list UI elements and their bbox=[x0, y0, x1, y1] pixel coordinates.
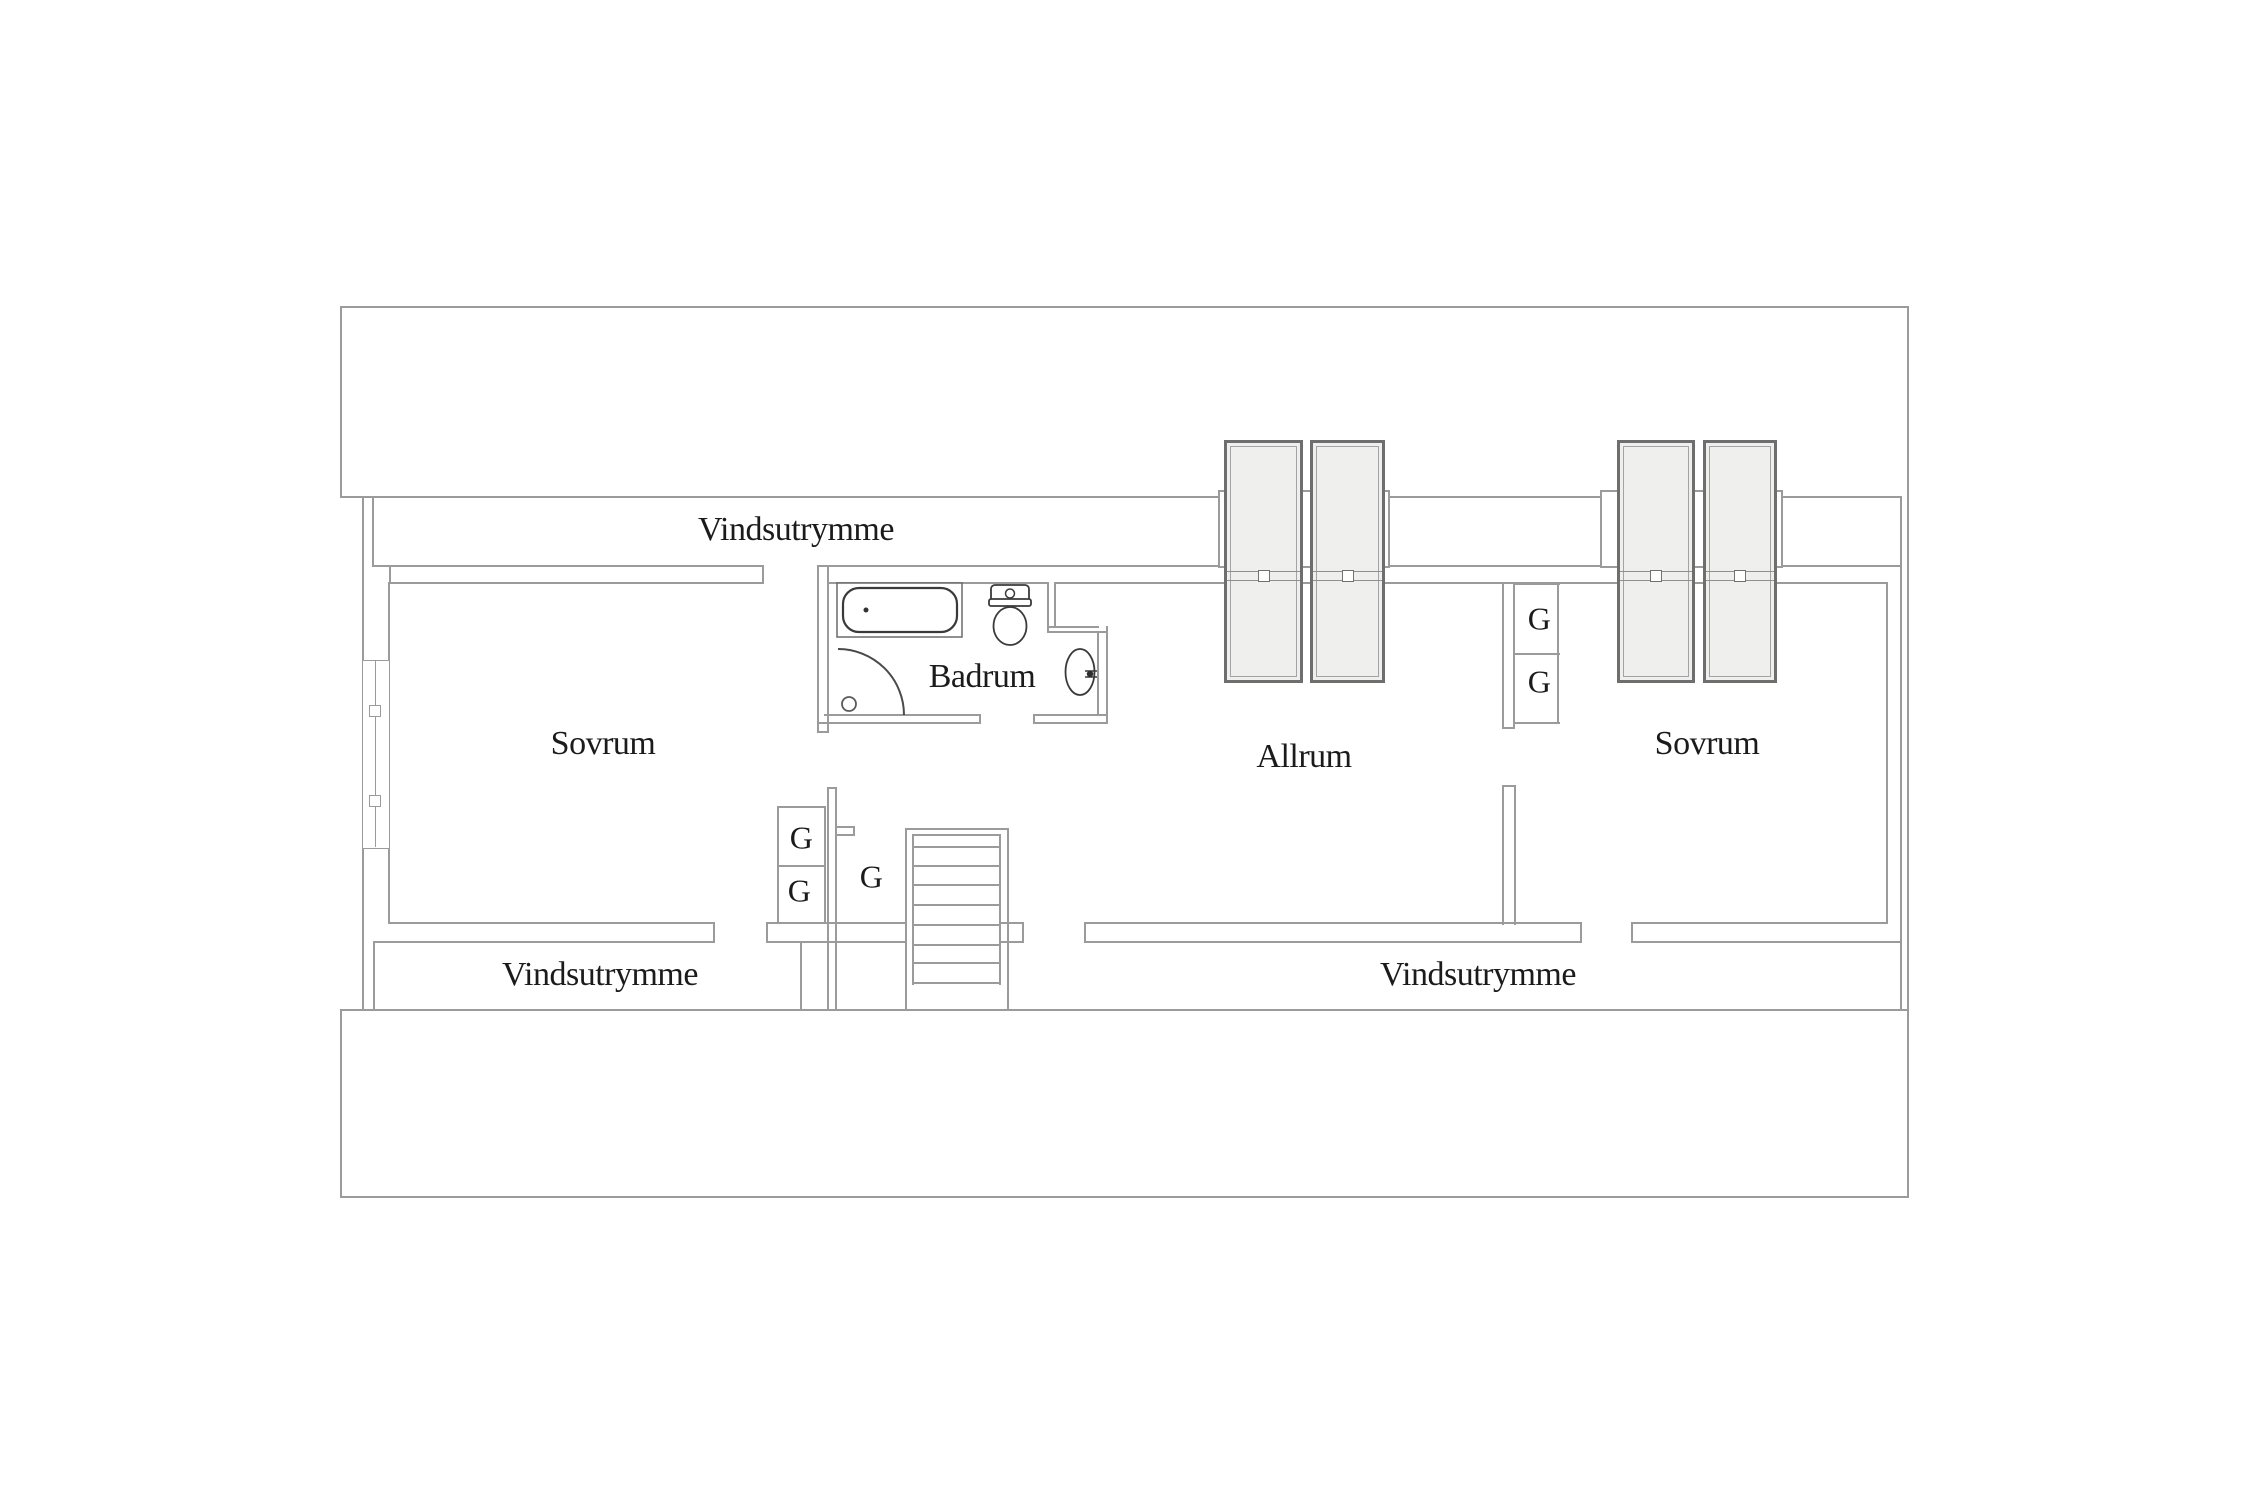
room-label-g-closet-left-upper: G bbox=[790, 820, 813, 857]
sink-tap-dot bbox=[1087, 671, 1093, 677]
toilet-seat-lip bbox=[989, 599, 1031, 606]
shower-drain bbox=[842, 697, 856, 711]
bathroom-fixtures bbox=[0, 0, 2250, 1500]
room-label-badrum: Badrum bbox=[929, 658, 1036, 696]
toilet-flush-button bbox=[1006, 589, 1015, 598]
bathtub-basin bbox=[843, 588, 957, 632]
room-label-g-closet-right-upper: G bbox=[1528, 601, 1551, 638]
room-label-g-closet-understair: G bbox=[860, 859, 883, 896]
toilet-bowl bbox=[994, 607, 1027, 645]
room-label-vindsutrymme-top: Vindsutrymme bbox=[698, 511, 894, 549]
bathtub-drain-dot bbox=[864, 608, 869, 613]
room-label-g-closet-right-lower: G bbox=[1528, 664, 1551, 701]
room-label-vindsutrymme-bottom-left: Vindsutrymme bbox=[502, 956, 698, 994]
floor-plan-canvas: VindsutrymmeSovrumBadrumAllrumSovrumVind… bbox=[0, 0, 2250, 1500]
room-label-allrum: Allrum bbox=[1256, 738, 1351, 776]
room-label-g-closet-left-lower: G bbox=[788, 873, 811, 910]
room-label-sovrum-left: Sovrum bbox=[551, 725, 656, 763]
room-label-sovrum-right: Sovrum bbox=[1655, 725, 1760, 763]
room-label-vindsutrymme-bottom-right: Vindsutrymme bbox=[1380, 956, 1576, 994]
